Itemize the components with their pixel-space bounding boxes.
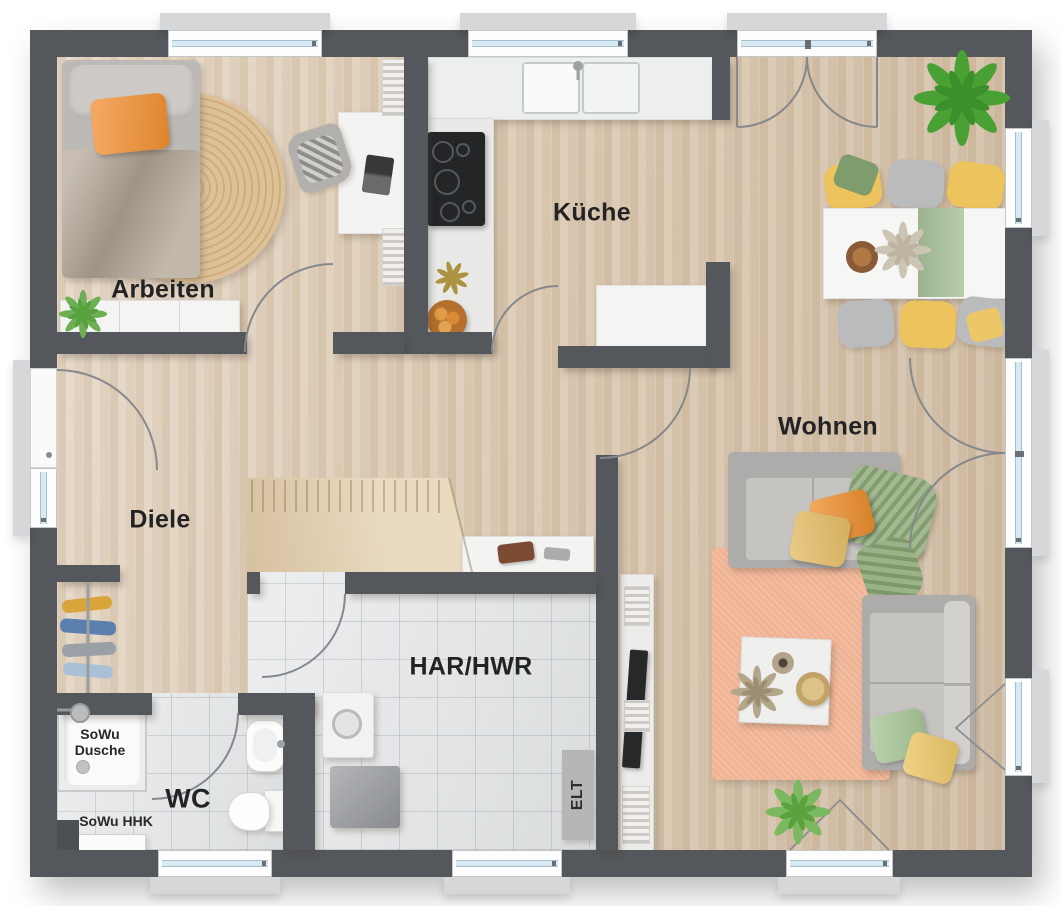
dining-chair <box>887 159 945 210</box>
french-door <box>1005 358 1032 548</box>
window-sill <box>1032 670 1049 783</box>
door-divider <box>805 40 811 49</box>
door-divider <box>1015 451 1024 457</box>
arbeiten-sideboard <box>60 300 240 334</box>
orange-pillow <box>89 92 170 156</box>
wall-kueche-right-top-stub <box>712 57 730 120</box>
dining-chair <box>945 159 1007 212</box>
wall-arbeiten-bottom-right <box>333 332 404 354</box>
shower-drain <box>76 760 90 774</box>
cooktop <box>427 132 485 226</box>
window-glass <box>172 40 318 47</box>
bookshelf-top <box>382 59 406 116</box>
console-books-mid <box>624 700 650 732</box>
window-sill <box>1032 120 1049 236</box>
centerpiece-bowl <box>846 241 878 273</box>
dining-chair <box>899 300 957 349</box>
window <box>158 850 272 877</box>
daybed-blanket <box>62 150 200 278</box>
wall-arbeiten-kueche <box>404 57 428 354</box>
window-glass <box>1015 132 1022 224</box>
washing-machine-door <box>332 709 362 739</box>
room-label-wohnen: Wohnen <box>778 413 878 442</box>
kitchen-sink <box>522 62 580 114</box>
shower-label-line2: Dusche <box>75 742 126 758</box>
window-sill <box>444 877 570 894</box>
wc-corner-shaft <box>57 820 79 850</box>
gold-tray <box>796 672 830 706</box>
window-glass <box>162 860 268 867</box>
table-runner <box>918 208 964 297</box>
window-glass <box>40 472 47 524</box>
window <box>1005 128 1032 228</box>
wall-wc-right <box>283 693 315 850</box>
room-label-arbeiten: Arbeiten <box>111 276 215 305</box>
room-label-wc: WC <box>165 784 211 815</box>
kitchen-sink-2 <box>582 62 640 114</box>
console-books-top <box>624 586 650 626</box>
entrance-door-handle <box>46 452 52 458</box>
wall-har-top <box>345 572 596 594</box>
window-sill <box>150 877 280 894</box>
room-label-har-hwr: HAR/HWR <box>410 653 533 682</box>
heater-label: SoWu HHK <box>79 813 153 829</box>
window-glass <box>472 40 624 47</box>
entrance-door <box>30 368 57 468</box>
wall-kueche-right-bottom-stub <box>706 262 730 368</box>
wc-sink-basin <box>253 728 277 762</box>
window <box>168 30 322 57</box>
bench-items <box>544 547 571 561</box>
wall-arbeiten-bottom-left <box>57 332 247 354</box>
wall-diele-wohnen <box>596 455 618 850</box>
window-glass <box>790 860 889 867</box>
console-books-bottom <box>622 786 650 844</box>
shower-label-line1: SoWu <box>75 726 126 742</box>
laptop <box>361 154 394 196</box>
staircase <box>247 478 472 572</box>
room-label-diele: Diele <box>129 506 190 535</box>
window-glass <box>456 860 558 867</box>
yellow-sofa-pillow <box>788 510 852 569</box>
bookshelf-bottom <box>382 228 406 286</box>
wall-kueche-bottom-left <box>428 332 492 354</box>
window-sill <box>778 877 900 894</box>
tilt-window <box>786 850 893 877</box>
door-sill <box>13 360 30 536</box>
window <box>468 30 628 57</box>
wall-coat-niche-stub <box>57 565 120 582</box>
entrance-sidelight <box>30 468 57 528</box>
floor-plan: Arbeiten Küche Wohnen Diele HAR/HWR WC S… <box>0 0 1061 906</box>
door-sill <box>1032 350 1049 556</box>
wall-kueche-bottom-right <box>558 346 714 368</box>
vase <box>772 652 794 674</box>
window-glass <box>1015 682 1022 772</box>
kitchen-island <box>596 285 714 350</box>
toilet-bowl <box>228 792 270 831</box>
double-patio-door <box>737 30 877 57</box>
electrical-label: ELT <box>569 780 587 811</box>
heat-pump-unit <box>330 766 400 828</box>
door-sill <box>727 13 887 30</box>
window-sill <box>160 13 330 30</box>
wall-wc-top-left <box>57 693 152 715</box>
shower-label: SoWu Dusche <box>75 726 126 758</box>
wall-har-top-left <box>247 572 260 594</box>
room-label-kueche: Küche <box>553 199 631 228</box>
dining-chair <box>836 298 895 349</box>
tilt-window <box>1005 678 1032 776</box>
window <box>452 850 562 877</box>
window-sill <box>460 13 636 30</box>
